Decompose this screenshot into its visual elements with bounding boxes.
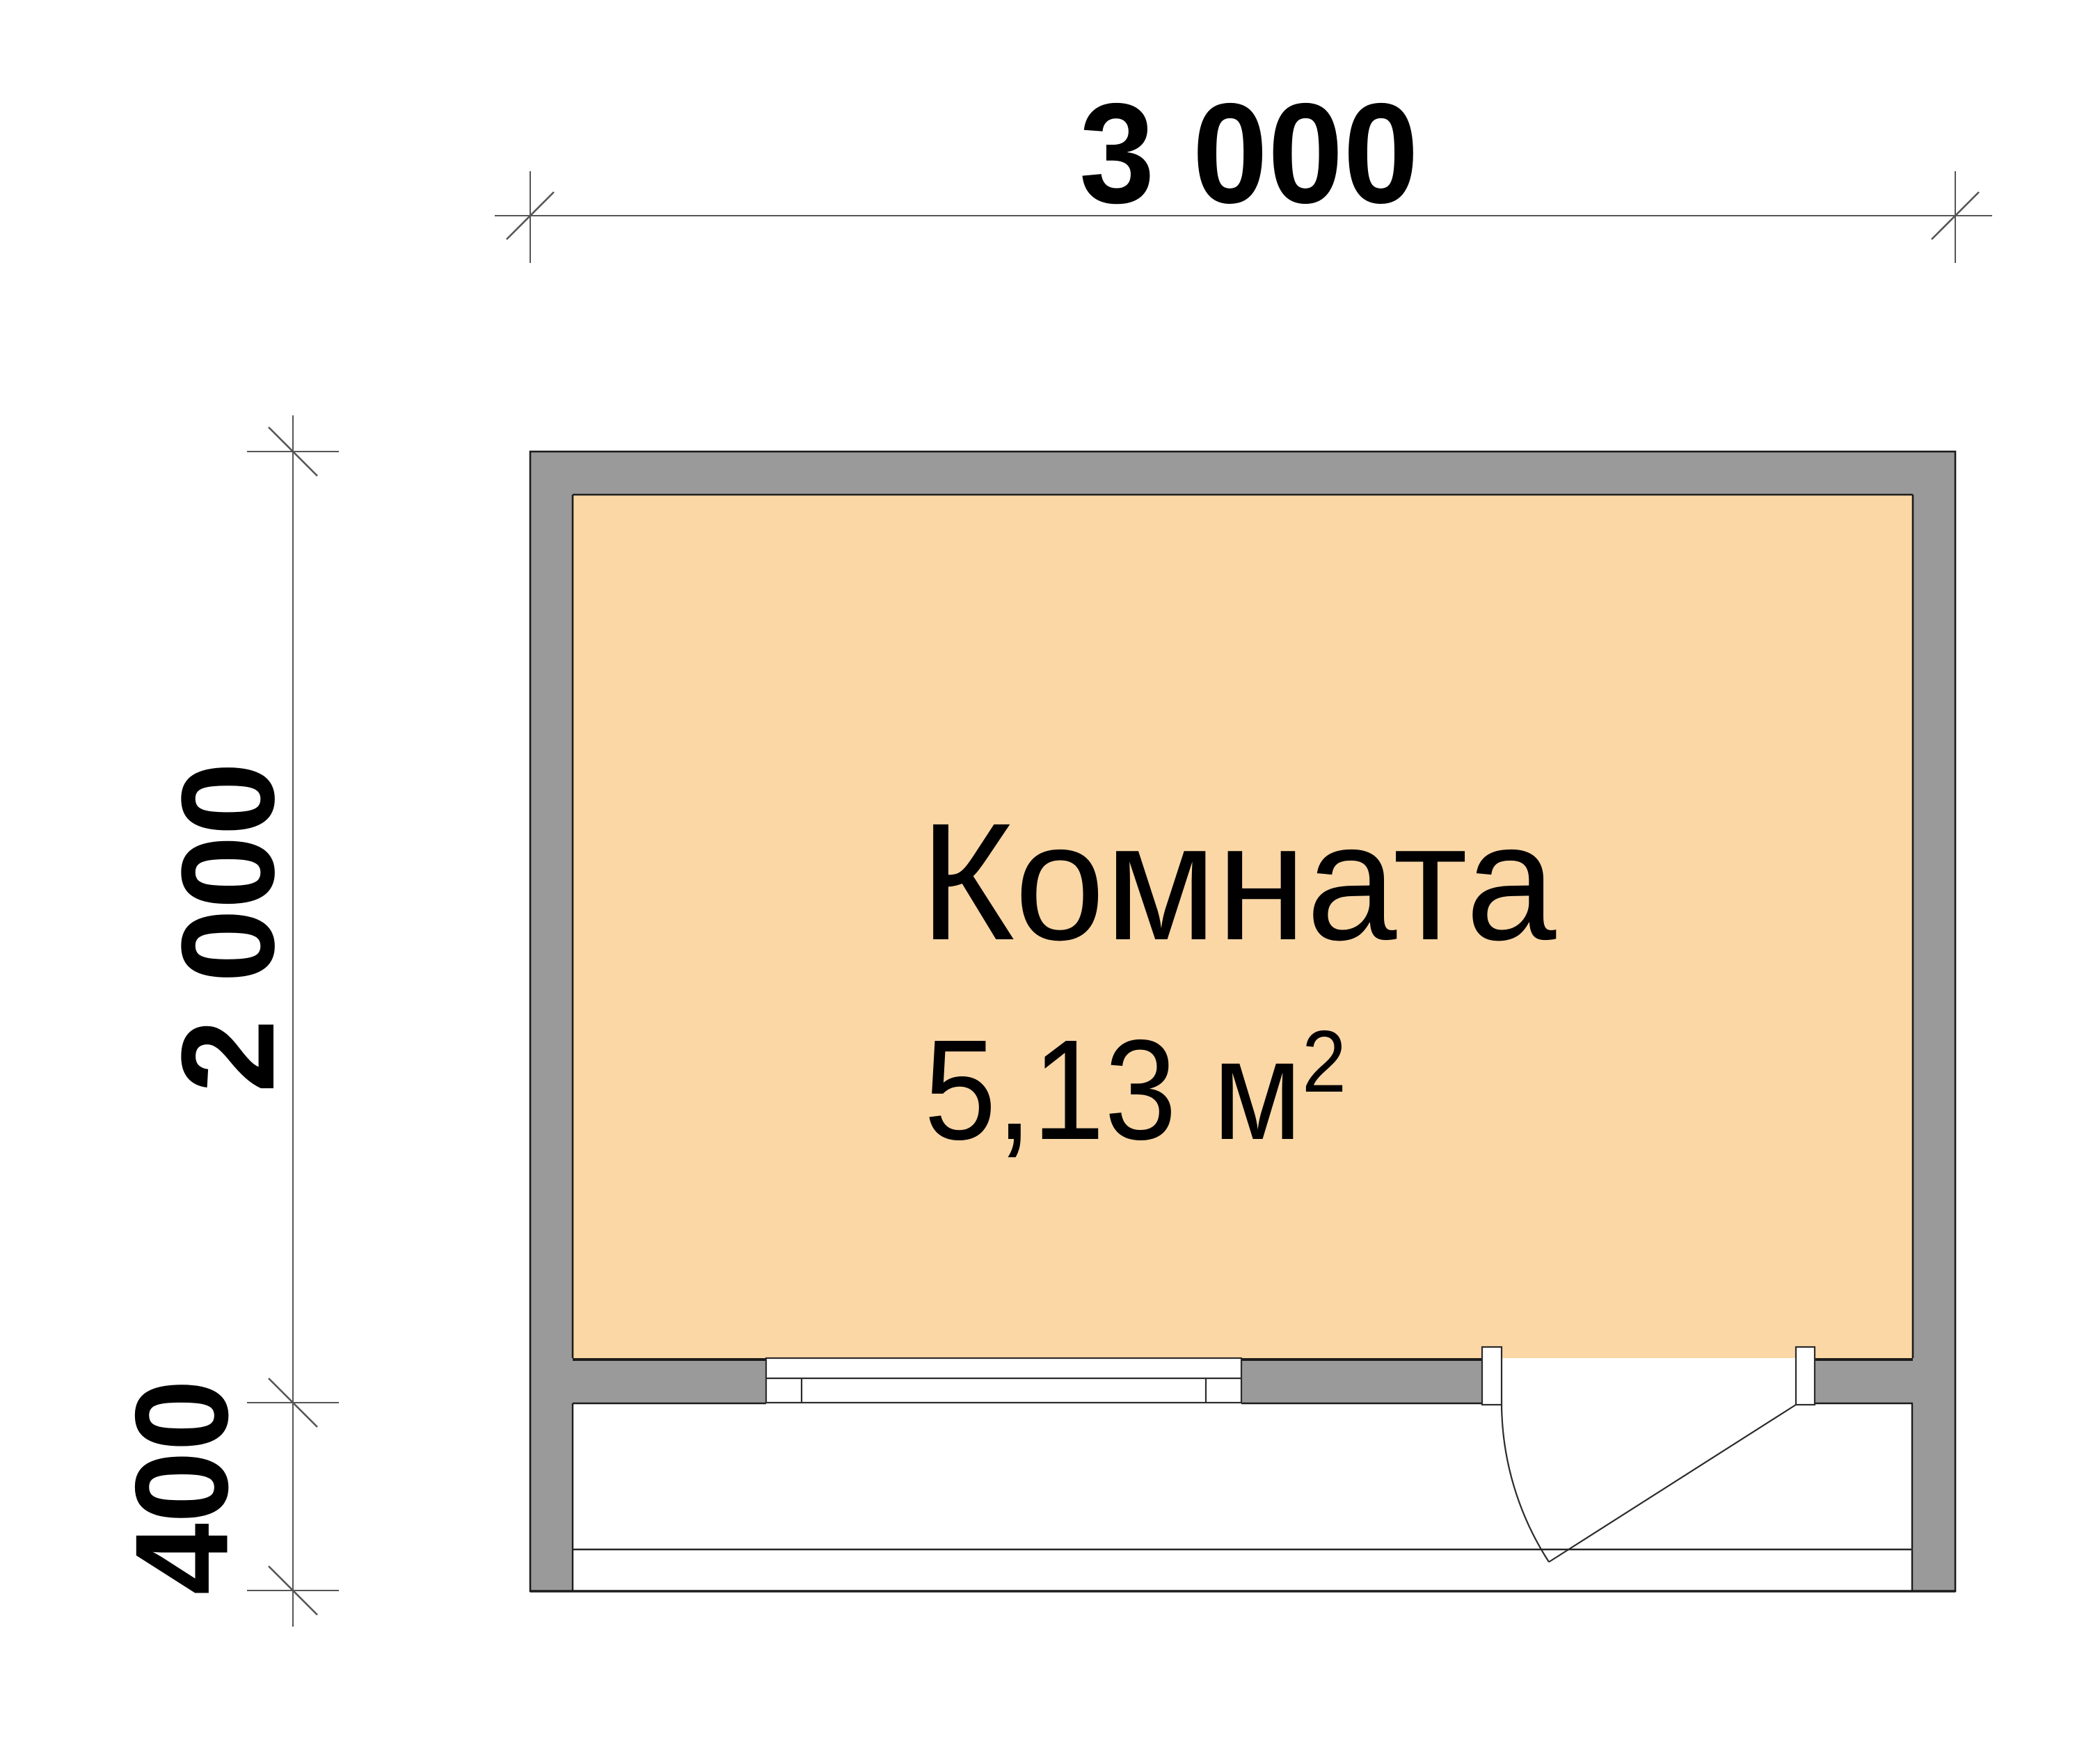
svg-text:2 000: 2 000 — [154, 762, 302, 1092]
svg-text:5,13 м2: 5,13 м2 — [924, 1010, 1346, 1170]
svg-text:400: 400 — [108, 1380, 255, 1595]
svg-text:3 000: 3 000 — [1079, 74, 1419, 234]
svg-text:Комната: Комната — [920, 789, 1557, 975]
